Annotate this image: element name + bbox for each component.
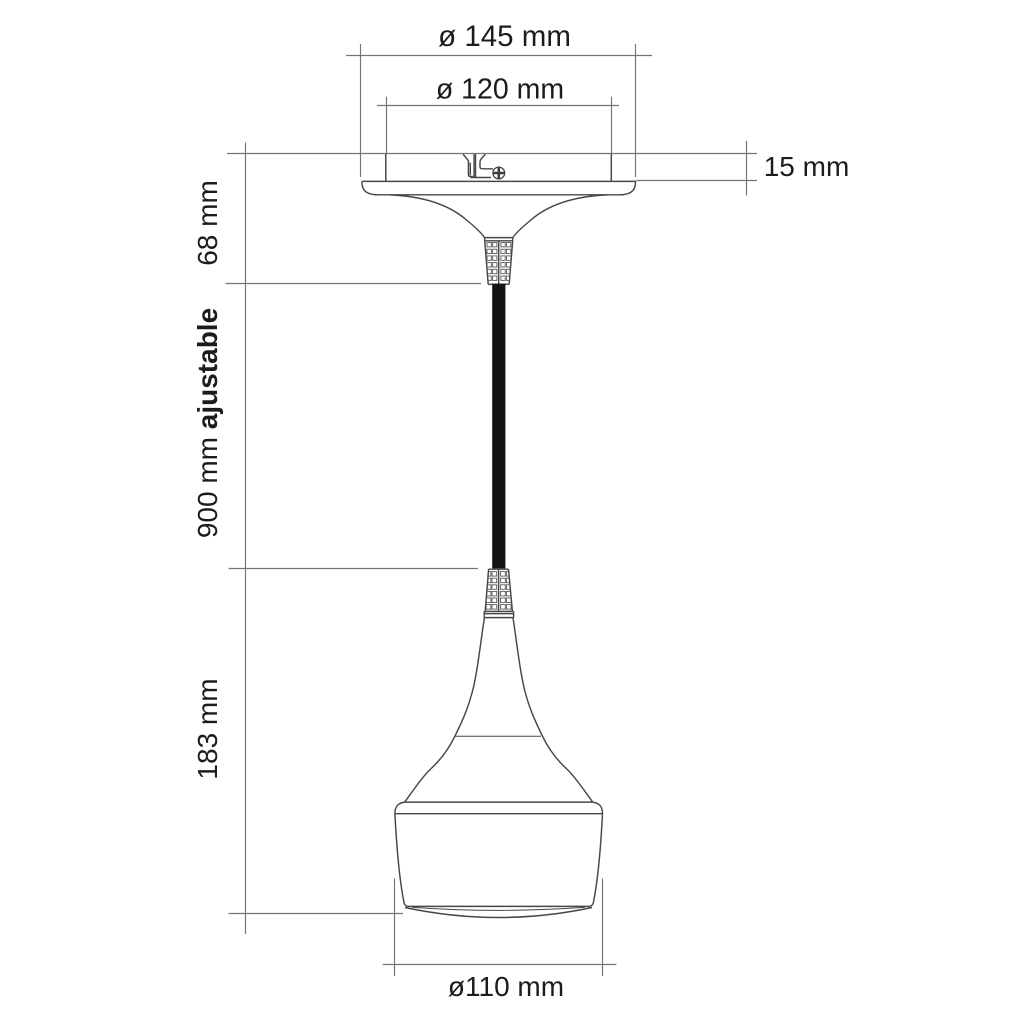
svg-text:ø 145 mm: ø 145 mm [438, 20, 571, 53]
svg-text:900 mm ajustable: 900 mm ajustable [192, 308, 223, 538]
svg-text:ø110 mm: ø110 mm [448, 971, 564, 1002]
svg-text:68 mm: 68 mm [192, 180, 223, 266]
svg-text:ø 120 mm: ø 120 mm [436, 74, 564, 106]
svg-text:15 mm: 15 mm [764, 151, 850, 182]
svg-text:183 mm: 183 mm [192, 678, 223, 779]
